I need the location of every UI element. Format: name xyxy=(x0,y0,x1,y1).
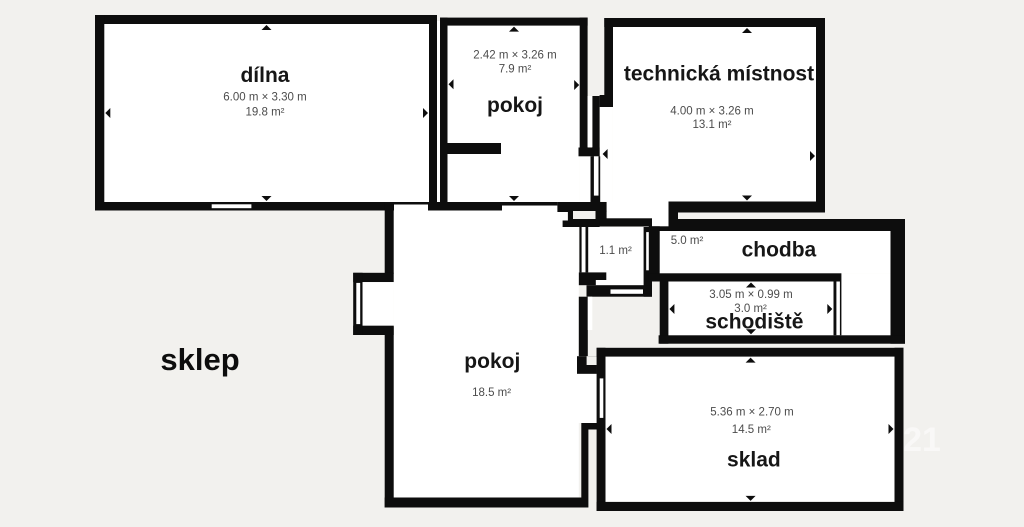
svg-text:pokoj: pokoj xyxy=(487,94,543,117)
svg-text:pokoj: pokoj xyxy=(464,350,520,373)
svg-text:5.0 m²: 5.0 m² xyxy=(671,235,704,247)
svg-text:technická místnost: technická místnost xyxy=(624,62,814,85)
svg-text:3.05 m × 0.99 m: 3.05 m × 0.99 m xyxy=(709,289,792,301)
svg-text:14.5 m²: 14.5 m² xyxy=(732,424,771,436)
svg-text:6.00 m × 3.30 m: 6.00 m × 3.30 m xyxy=(223,92,306,104)
svg-text:dílna: dílna xyxy=(240,64,289,87)
svg-text:13.1 m²: 13.1 m² xyxy=(693,119,732,131)
svg-text:4.00 m × 3.26 m: 4.00 m × 3.26 m xyxy=(670,106,753,118)
svg-text:schodiště: schodiště xyxy=(705,311,803,334)
svg-text:2.42 m × 3.26 m: 2.42 m × 3.26 m xyxy=(473,50,556,62)
svg-text:7.9 m²: 7.9 m² xyxy=(499,64,532,76)
svg-text:5.36 m × 2.70 m: 5.36 m × 2.70 m xyxy=(710,406,793,418)
svg-text:21: 21 xyxy=(903,421,941,459)
svg-text:1.1 m²: 1.1 m² xyxy=(599,245,632,257)
svg-text:18.5 m²: 18.5 m² xyxy=(472,387,511,399)
svg-text:19.8 m²: 19.8 m² xyxy=(246,107,285,119)
svg-text:sklep: sklep xyxy=(160,342,239,377)
svg-text:chodba: chodba xyxy=(742,239,817,262)
svg-text:sklad: sklad xyxy=(727,449,781,472)
